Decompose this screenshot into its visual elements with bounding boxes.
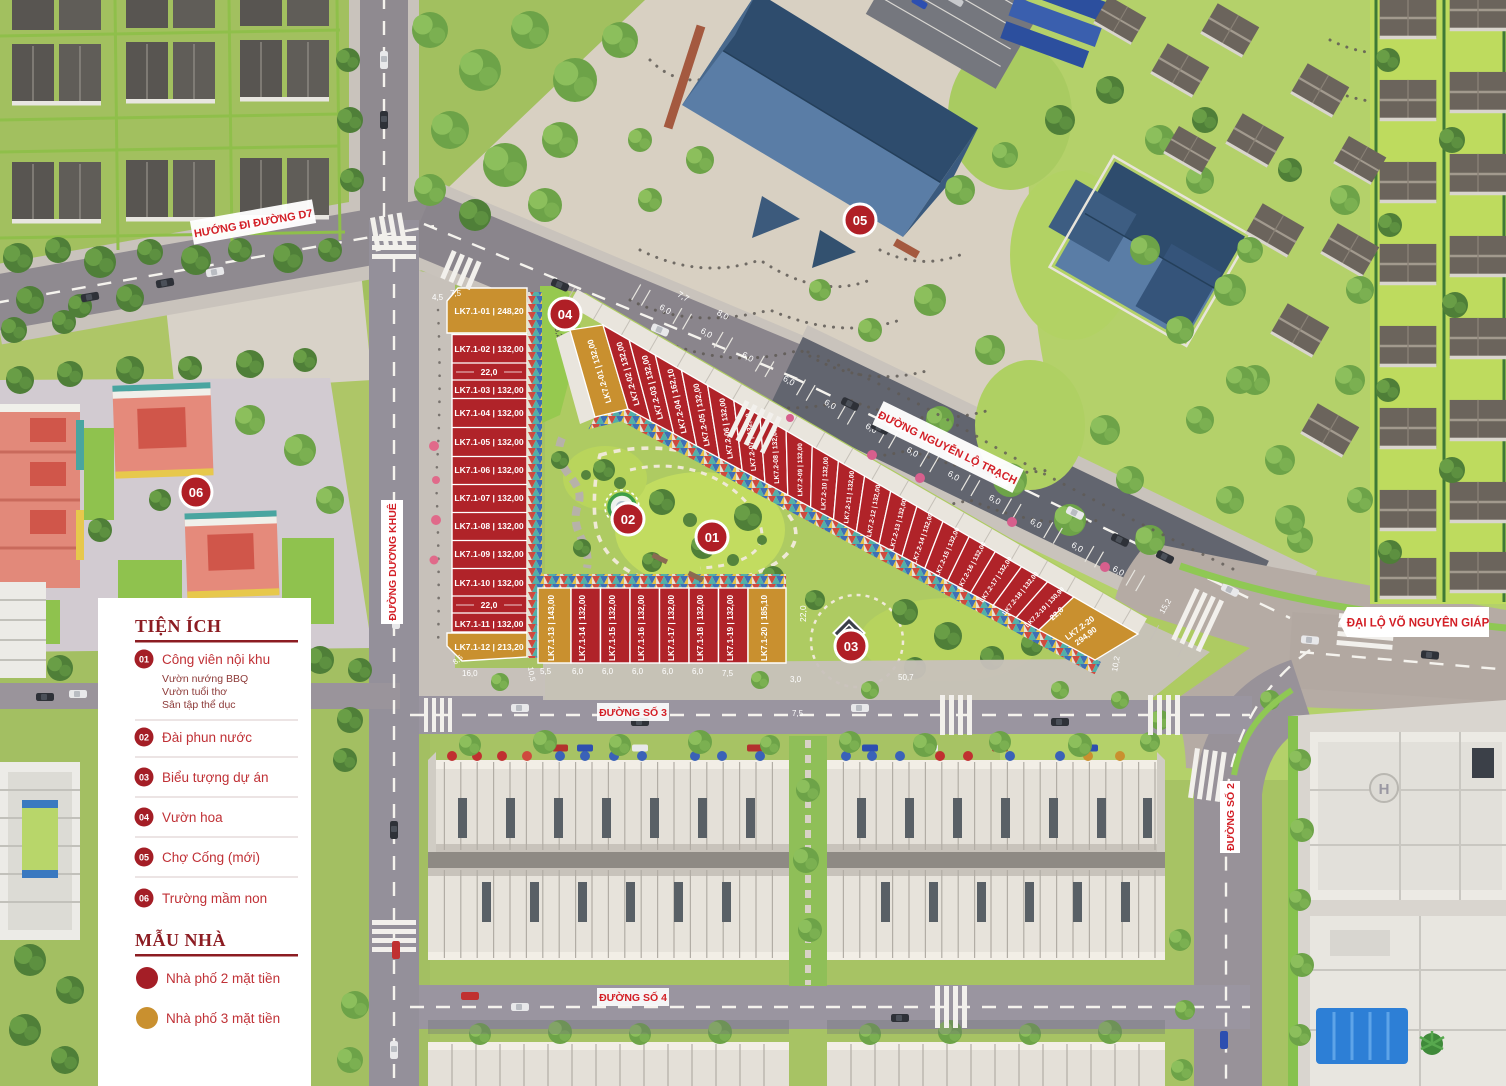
svg-text:Sân tập thể dục: Sân tập thể dục (162, 699, 236, 711)
svg-text:05: 05 (139, 853, 149, 863)
svg-text:Nhà phố 2 mặt tiền: Nhà phố 2 mặt tiền (166, 971, 280, 986)
svg-text:Nhà phố 3 mặt tiền: Nhà phố 3 mặt tiền (166, 1011, 280, 1026)
svg-text:50,7: 50,7 (898, 673, 914, 682)
svg-text:LK7.1-17 | 132,00: LK7.1-17 | 132,00 (667, 595, 676, 661)
svg-text:Chợ Cống (mới): Chợ Cống (mới) (162, 850, 260, 865)
svg-text:22,0: 22,0 (481, 367, 498, 377)
svg-text:6,0: 6,0 (692, 667, 704, 676)
svg-text:LK7.1-15 | 132,00: LK7.1-15 | 132,00 (608, 595, 617, 661)
svg-text:LK7.1-05 | 132,00: LK7.1-05 | 132,00 (454, 437, 524, 447)
svg-text:6,0: 6,0 (662, 667, 674, 676)
svg-text:ĐƯỜNG SỐ 4: ĐƯỜNG SỐ 4 (599, 990, 667, 1004)
svg-text:6,0: 6,0 (632, 667, 644, 676)
svg-text:06: 06 (139, 894, 149, 904)
svg-text:LK7.1-08 | 132,00: LK7.1-08 | 132,00 (454, 521, 524, 531)
svg-text:ĐẠI LỘ VÕ NGUYÊN GIÁP: ĐẠI LỘ VÕ NGUYÊN GIÁP (1347, 617, 1490, 630)
svg-text:Vườn tuổi thơ: Vườn tuổi thơ (162, 686, 227, 698)
svg-text:LK7.1-16 | 132,00: LK7.1-16 | 132,00 (637, 595, 646, 661)
svg-text:03: 03 (844, 639, 858, 654)
svg-text:01: 01 (139, 655, 149, 665)
svg-text:LK7.1-12 | 213,20: LK7.1-12 | 213,20 (454, 642, 524, 652)
svg-text:5,5: 5,5 (540, 667, 552, 676)
svg-text:Trường mầm non: Trường mầm non (162, 891, 267, 906)
svg-text:7,5: 7,5 (792, 709, 804, 718)
svg-text:LK7.1-03 | 132,00: LK7.1-03 | 132,00 (454, 385, 524, 395)
svg-text:TIỆN ÍCH: TIỆN ÍCH (135, 615, 222, 636)
svg-text:01: 01 (705, 530, 719, 545)
svg-text:LK7.1-18 | 132,00: LK7.1-18 | 132,00 (696, 595, 705, 661)
svg-text:03: 03 (139, 773, 149, 783)
svg-text:LK7.1-20 | 185,10: LK7.1-20 | 185,10 (760, 595, 769, 661)
svg-text:ĐƯỜNG DƯƠNG KHUÊ: ĐƯỜNG DƯƠNG KHUÊ (386, 503, 399, 621)
svg-text:22,0: 22,0 (481, 600, 498, 610)
svg-text:4,5: 4,5 (432, 293, 444, 302)
svg-text:Vườn hoa: Vườn hoa (162, 810, 223, 825)
svg-text:LK7.1-13 | 143,00: LK7.1-13 | 143,00 (547, 595, 556, 661)
svg-text:LK7.1-11 | 132,00: LK7.1-11 | 132,00 (455, 619, 524, 629)
svg-text:04: 04 (558, 307, 573, 322)
svg-text:02: 02 (139, 733, 149, 743)
svg-text:22,0: 22,0 (798, 605, 808, 622)
svg-text:6,0: 6,0 (602, 667, 614, 676)
svg-text:02: 02 (621, 512, 635, 527)
svg-text:LK7.1-04 | 132,00: LK7.1-04 | 132,00 (454, 408, 524, 418)
svg-text:ĐƯỜNG SỐ 3: ĐƯỜNG SỐ 3 (599, 705, 667, 719)
svg-text:MẪU NHÀ: MẪU NHÀ (135, 929, 226, 950)
svg-text:Vườn nướng BBQ: Vườn nướng BBQ (162, 673, 248, 685)
svg-text:Đài phun nước: Đài phun nước (162, 730, 252, 745)
svg-text:LK7.1-07 | 132,00: LK7.1-07 | 132,00 (454, 493, 524, 503)
svg-text:Công viên nội khu: Công viên nội khu (162, 652, 270, 667)
svg-text:LK7.1-10 | 132,00: LK7.1-10 | 132,00 (454, 578, 524, 588)
svg-text:LK7.1-19 | 132,00: LK7.1-19 | 132,00 (726, 595, 735, 661)
svg-text:3,0: 3,0 (790, 675, 802, 684)
svg-text:LK7.1-14 | 132,00: LK7.1-14 | 132,00 (578, 595, 587, 661)
svg-text:7,5: 7,5 (450, 289, 462, 298)
svg-text:LK7.1-06 | 132,00: LK7.1-06 | 132,00 (454, 465, 524, 475)
svg-text:LK7.1-02 | 132,00: LK7.1-02 | 132,00 (454, 344, 524, 354)
svg-text:H: H (1379, 781, 1390, 798)
svg-text:Biểu tượng dự án: Biểu tượng dự án (162, 770, 269, 785)
svg-text:6,0: 6,0 (572, 667, 584, 676)
svg-text:7,5: 7,5 (722, 669, 734, 678)
svg-text:05: 05 (853, 213, 867, 228)
svg-text:LK7.1-09 | 132,00: LK7.1-09 | 132,00 (454, 549, 524, 559)
svg-text:04: 04 (139, 813, 149, 823)
svg-text:LK7.2-09 | 132,00: LK7.2-09 | 132,00 (797, 443, 804, 497)
svg-text:LK7.1-01 | 248,20: LK7.1-01 | 248,20 (454, 306, 524, 316)
svg-text:ĐƯỜNG SỐ 2: ĐƯỜNG SỐ 2 (1223, 783, 1237, 851)
svg-text:06: 06 (189, 485, 203, 500)
svg-text:16,0: 16,0 (462, 669, 478, 678)
